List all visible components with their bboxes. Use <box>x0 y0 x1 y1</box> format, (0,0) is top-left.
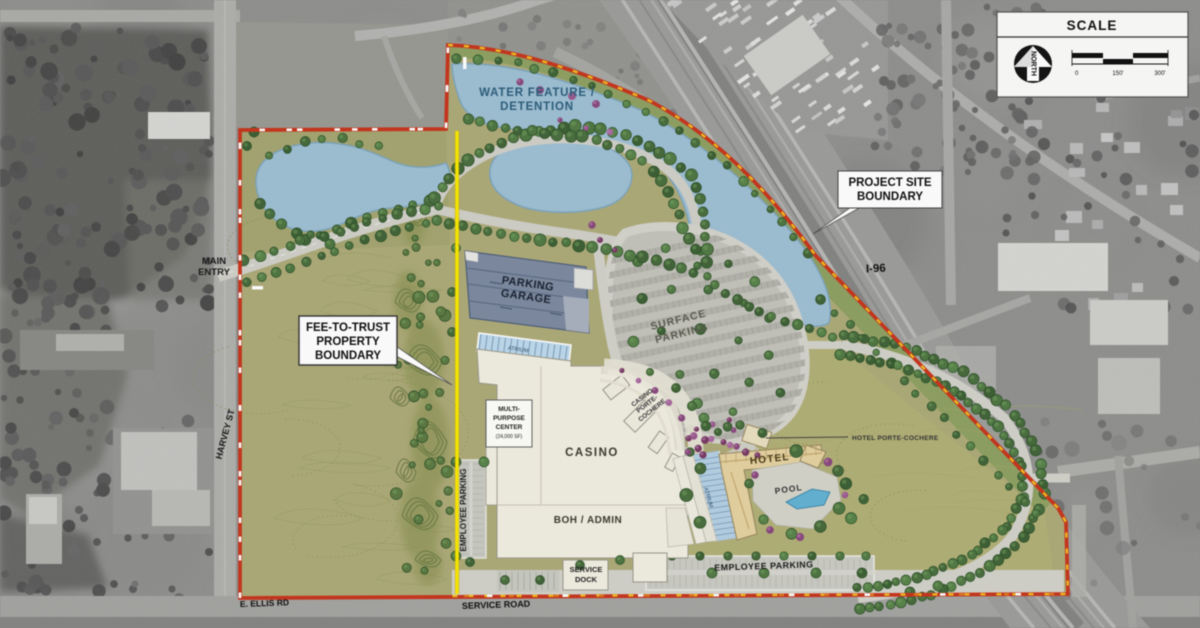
svg-text:I-96: I-96 <box>866 262 886 275</box>
svg-text:HOTEL PORTE-COCHERE: HOTEL PORTE-COCHERE <box>852 435 939 442</box>
svg-text:ENTRY: ENTRY <box>198 267 231 278</box>
svg-text:E. ELLIS RD: E. ELLIS RD <box>240 597 289 609</box>
svg-text:CASINO: CASINO <box>565 447 619 459</box>
svg-text:FEE-TO-TRUST: FEE-TO-TRUST <box>306 322 390 334</box>
svg-text:EMPLOYEE PARKING: EMPLOYEE PARKING <box>459 469 468 552</box>
svg-text:(24,000 SF): (24,000 SF) <box>496 434 523 440</box>
svg-text:SCALE: SCALE <box>1067 18 1118 33</box>
svg-text:BOUNDARY: BOUNDARY <box>315 350 381 362</box>
svg-text:MULTI-: MULTI- <box>498 406 520 413</box>
svg-text:PURPOSE: PURPOSE <box>493 415 525 422</box>
svg-text:MAIN: MAIN <box>202 256 226 267</box>
svg-text:BOH / ADMIN: BOH / ADMIN <box>554 515 622 526</box>
svg-text:PROPERTY: PROPERTY <box>316 336 380 348</box>
svg-text:DETENTION: DETENTION <box>500 101 574 113</box>
svg-text:NORTH: NORTH <box>1030 51 1037 76</box>
svg-text:SERVICE: SERVICE <box>570 565 603 574</box>
svg-text:DOCK: DOCK <box>575 575 598 584</box>
svg-text:WATER FEATURE /: WATER FEATURE / <box>479 87 595 99</box>
svg-text:CENTER: CENTER <box>496 424 523 431</box>
svg-text:PROJECT SITE: PROJECT SITE <box>848 177 931 189</box>
svg-text:300': 300' <box>1154 71 1165 77</box>
svg-text:BOUNDARY: BOUNDARY <box>857 191 923 203</box>
svg-text:150': 150' <box>1112 71 1123 77</box>
